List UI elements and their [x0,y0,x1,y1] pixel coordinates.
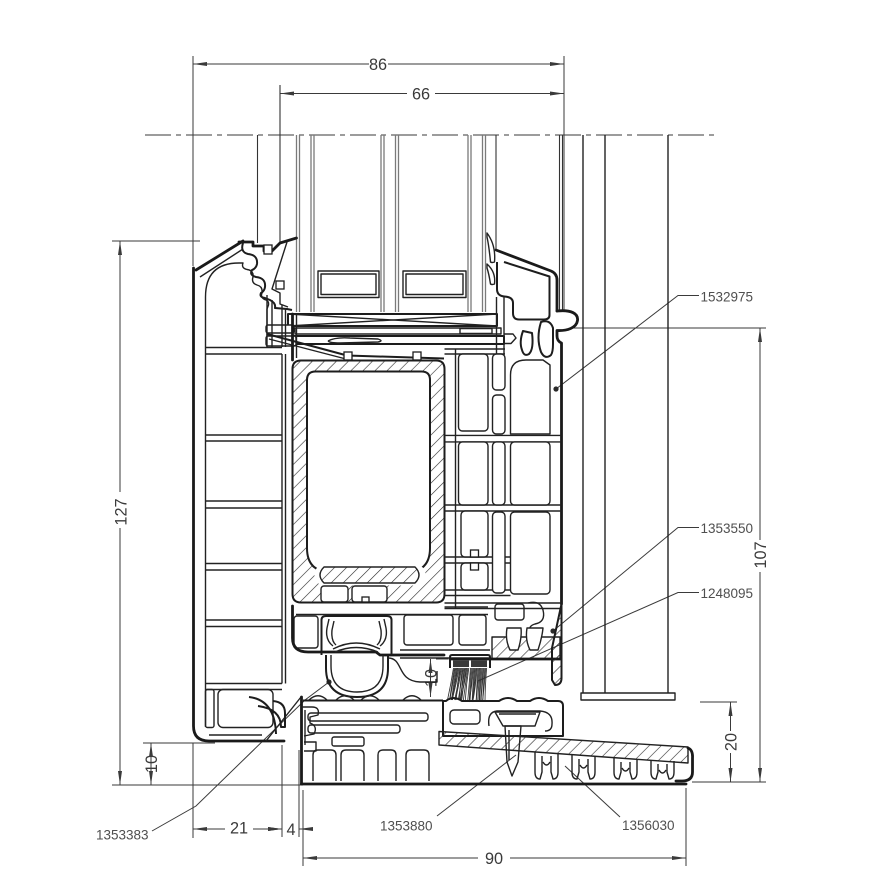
svg-text:127: 127 [113,498,131,525]
svg-text:66: 66 [412,86,430,104]
svg-text:1532975: 1532975 [701,290,754,305]
svg-text:1353880: 1353880 [380,819,433,834]
svg-text:90: 90 [485,850,503,868]
svg-text:21: 21 [230,820,248,838]
svg-text:107: 107 [752,541,770,568]
svg-text:1356030: 1356030 [622,818,675,833]
svg-text:1353550: 1353550 [701,521,754,536]
svg-text:10: 10 [423,669,441,687]
svg-text:20: 20 [723,733,741,751]
svg-text:1248095: 1248095 [701,586,754,601]
svg-text:86: 86 [369,56,387,74]
svg-text:4: 4 [286,821,295,839]
svg-text:10: 10 [143,755,161,773]
svg-text:1353383: 1353383 [96,828,149,843]
